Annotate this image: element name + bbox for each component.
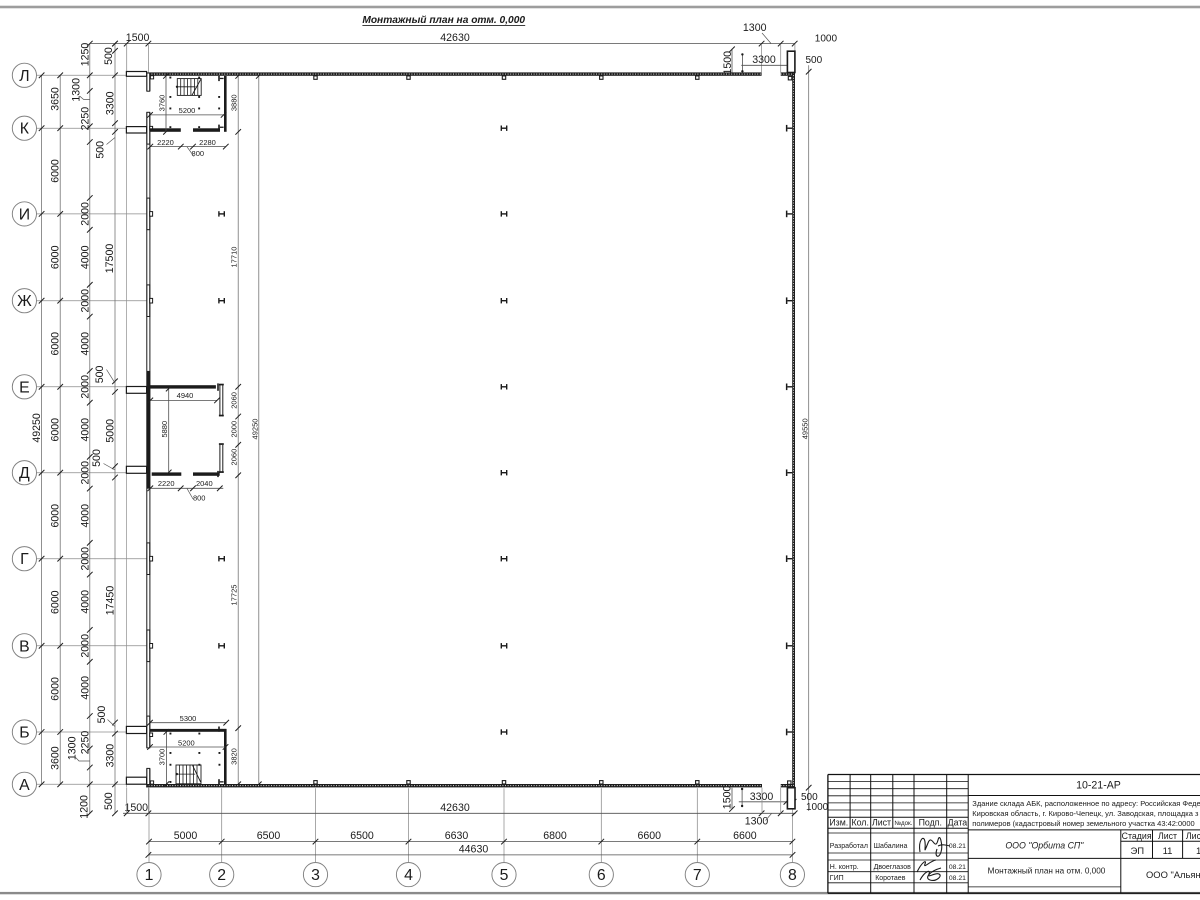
svg-text:2000: 2000 [79, 547, 91, 571]
svg-text:49250: 49250 [31, 413, 43, 443]
svg-text:Листов: Листов [1186, 831, 1200, 841]
svg-text:Изм.: Изм. [829, 817, 848, 827]
svg-text:2000: 2000 [79, 202, 91, 226]
svg-text:1500: 1500 [125, 802, 149, 814]
svg-text:1000: 1000 [806, 802, 829, 813]
svg-text:2280: 2280 [199, 138, 216, 147]
svg-text:4: 4 [404, 867, 413, 884]
svg-text:ООО "Альянс-Проект": ООО "Альянс-Проект" [1146, 869, 1200, 880]
svg-text:Н. контр.: Н. контр. [830, 864, 859, 871]
svg-text:3300: 3300 [104, 744, 116, 768]
svg-text:Подп.: Подп. [919, 817, 942, 827]
svg-text:5000: 5000 [104, 419, 116, 443]
svg-text:17450: 17450 [104, 586, 116, 616]
svg-text:1300: 1300 [67, 736, 79, 760]
svg-text:Стадия: Стадия [1122, 831, 1152, 841]
svg-text:Монтажный план на отм. 0,000: Монтажный план на отм. 0,000 [362, 15, 525, 26]
svg-text:5200: 5200 [179, 106, 196, 115]
svg-text:4940: 4940 [177, 391, 194, 400]
svg-text:Лист: Лист [872, 817, 891, 827]
svg-text:6600: 6600 [733, 830, 757, 842]
svg-text:2000: 2000 [79, 461, 91, 485]
svg-text:2250: 2250 [79, 107, 91, 131]
svg-text:1500: 1500 [126, 32, 150, 44]
svg-text:2250: 2250 [79, 731, 91, 755]
svg-text:08.21: 08.21 [949, 843, 966, 850]
svg-text:42630: 42630 [440, 802, 470, 814]
svg-text:Дата: Дата [948, 817, 968, 827]
svg-text:8: 8 [788, 867, 797, 884]
svg-text:17725: 17725 [230, 585, 239, 606]
svg-text:42630: 42630 [440, 32, 470, 44]
svg-text:Б: Б [19, 725, 29, 742]
svg-text:4000: 4000 [79, 676, 91, 700]
svg-text:Ж: Ж [17, 293, 32, 310]
svg-text:6600: 6600 [638, 830, 662, 842]
svg-text:Разработал: Разработал [830, 842, 868, 850]
svg-text:6000: 6000 [50, 159, 62, 183]
svg-text:5000: 5000 [174, 830, 198, 842]
svg-text:6630: 6630 [445, 830, 469, 842]
svg-text:1500: 1500 [722, 786, 734, 810]
svg-text:500: 500 [94, 365, 106, 383]
svg-text:2000: 2000 [79, 289, 91, 313]
svg-text:2: 2 [217, 867, 226, 884]
svg-text:полимеров (кадастровый номер з: полимеров (кадастровый номер земельного … [972, 819, 1194, 828]
svg-text:В: В [19, 638, 30, 655]
svg-text:17500: 17500 [104, 244, 116, 274]
svg-text:3300: 3300 [752, 54, 776, 66]
svg-text:500: 500 [96, 706, 108, 724]
svg-text:7: 7 [693, 867, 702, 884]
svg-text:Д: Д [19, 465, 30, 482]
svg-text:Л: Л [19, 68, 29, 85]
svg-text:800: 800 [193, 494, 206, 503]
svg-text:4000: 4000 [79, 245, 91, 269]
svg-text:Монтажный план на отм. 0,000: Монтажный план на отм. 0,000 [988, 866, 1106, 875]
svg-text:6000: 6000 [50, 590, 62, 614]
svg-text:2000: 2000 [79, 634, 91, 658]
svg-text:4000: 4000 [79, 332, 91, 356]
svg-text:Коротаев: Коротаев [875, 875, 906, 882]
svg-text:3600: 3600 [50, 746, 62, 770]
svg-text:17710: 17710 [230, 247, 239, 268]
svg-text:4000: 4000 [79, 418, 91, 442]
svg-text:Здание склада АБК, расположенн: Здание склада АБК, расположенное по адре… [972, 799, 1200, 808]
svg-text:11: 11 [1163, 846, 1173, 857]
svg-text:1300: 1300 [71, 78, 83, 102]
svg-text:6000: 6000 [50, 418, 62, 442]
svg-text:3300: 3300 [104, 91, 116, 115]
svg-text:3650: 3650 [50, 87, 62, 111]
svg-text:6000: 6000 [50, 504, 62, 528]
svg-text:А: А [19, 777, 30, 794]
svg-text:1250: 1250 [79, 43, 91, 67]
svg-text:Кировская область, г. Кирово-Ч: Кировская область, г. Кирово-Чепецк, ул.… [972, 809, 1199, 818]
svg-text:1000: 1000 [815, 34, 838, 45]
svg-text:2060: 2060 [230, 392, 239, 409]
svg-text:6000: 6000 [50, 332, 62, 356]
svg-text:08.21: 08.21 [949, 864, 966, 871]
svg-text:1: 1 [145, 867, 154, 884]
svg-text:2000: 2000 [79, 375, 91, 399]
svg-text:Двоеглазов: Двоеглазов [874, 864, 911, 871]
svg-text:44630: 44630 [459, 844, 489, 856]
svg-text:К: К [20, 121, 30, 138]
svg-text:ЭП: ЭП [1130, 846, 1144, 857]
svg-text:6: 6 [597, 867, 606, 884]
svg-text:49250: 49250 [251, 419, 260, 440]
svg-text:3300: 3300 [750, 791, 774, 803]
svg-text:08.21: 08.21 [949, 875, 966, 882]
svg-text:Шабалина: Шабалина [874, 842, 908, 850]
svg-text:Е: Е [19, 379, 30, 396]
svg-text:5880: 5880 [160, 421, 169, 438]
svg-text:3: 3 [311, 867, 320, 884]
svg-text:6000: 6000 [50, 677, 62, 701]
svg-text:Лист: Лист [1158, 831, 1177, 841]
svg-text:3820: 3820 [230, 748, 239, 765]
svg-text:2000: 2000 [230, 421, 239, 438]
svg-text:№док.: №док. [894, 820, 912, 827]
svg-text:Г: Г [20, 551, 29, 568]
svg-text:10-21-АР: 10-21-АР [1076, 780, 1121, 792]
svg-text:4000: 4000 [79, 504, 91, 528]
svg-text:5: 5 [500, 867, 509, 884]
svg-text:5200: 5200 [178, 738, 195, 747]
svg-text:800: 800 [192, 149, 205, 158]
svg-text:2060: 2060 [230, 449, 239, 466]
svg-text:500: 500 [95, 141, 107, 159]
svg-text:6800: 6800 [543, 830, 567, 842]
svg-text:3700: 3700 [157, 749, 166, 766]
svg-text:1200: 1200 [78, 795, 90, 819]
svg-text:49550: 49550 [801, 418, 810, 439]
svg-text:5300: 5300 [180, 714, 197, 723]
svg-text:500: 500 [103, 47, 115, 65]
svg-text:6500: 6500 [257, 830, 281, 842]
svg-text:2220: 2220 [157, 138, 174, 147]
svg-text:1300: 1300 [745, 816, 769, 828]
svg-text:3760: 3760 [157, 95, 166, 112]
svg-text:6500: 6500 [350, 830, 374, 842]
svg-text:1: 1 [1196, 846, 1200, 857]
svg-text:1300: 1300 [743, 22, 767, 34]
svg-text:500: 500 [91, 449, 103, 467]
svg-text:4000: 4000 [79, 590, 91, 614]
svg-text:ООО "Орбита СП": ООО "Орбита СП" [1005, 840, 1084, 850]
svg-text:500: 500 [806, 55, 823, 66]
svg-text:2220: 2220 [158, 479, 175, 488]
svg-text:500: 500 [103, 792, 115, 810]
svg-text:ГИП: ГИП [830, 875, 844, 882]
svg-text:6000: 6000 [50, 245, 62, 269]
svg-text:Кол.: Кол. [851, 817, 868, 827]
svg-text:3880: 3880 [230, 94, 239, 111]
svg-text:И: И [19, 206, 30, 223]
svg-text:2040: 2040 [196, 479, 213, 488]
svg-text:1500: 1500 [722, 51, 734, 75]
